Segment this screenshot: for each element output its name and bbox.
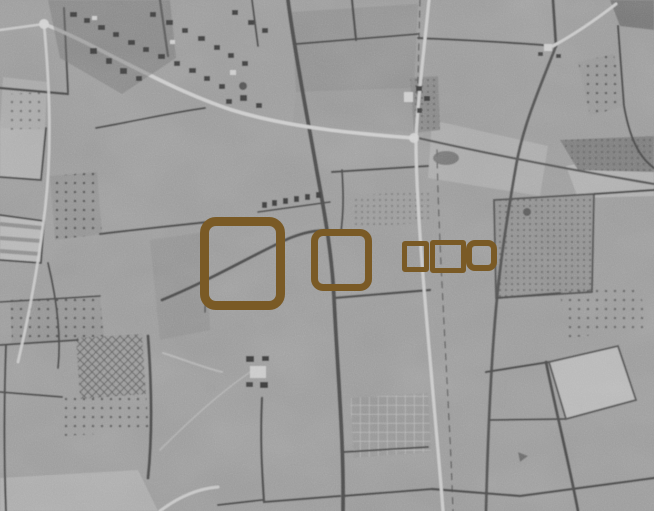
screenshot-root — [0, 0, 654, 511]
texture-layer — [0, 0, 654, 511]
aerial-photo — [0, 0, 654, 511]
